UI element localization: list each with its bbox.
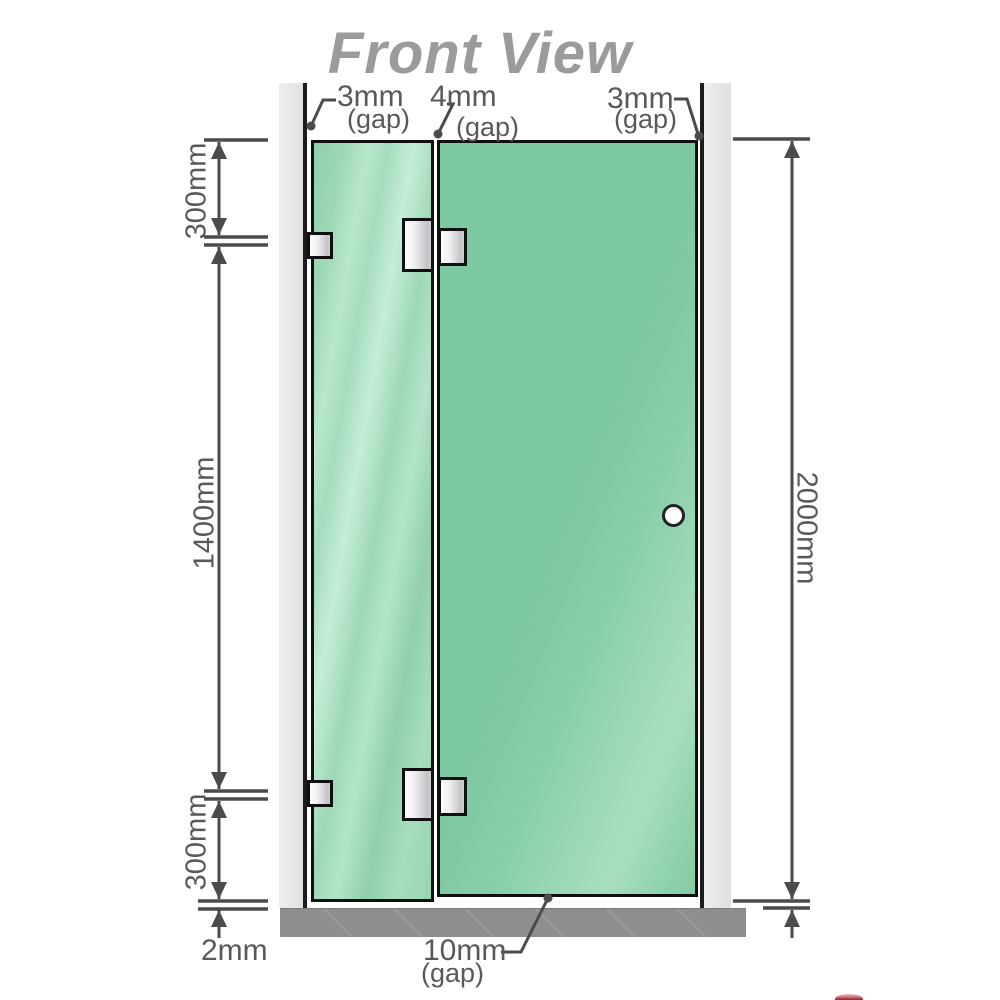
dimension-label-floor-gap: 2mm [201,936,268,966]
dimension-label-left-middle: 1400mm [189,457,222,570]
watermark-logo-fragment [835,994,863,1000]
dimension-label-left-bottom: 300mm [181,794,214,891]
hinge-bottom-panel-side [402,768,434,821]
gap-label-top-left-unit: (gap) [347,106,410,133]
dimension-label-left-top: 300mm [181,143,214,240]
gap-label-top-middle-value: 4mm [430,82,497,112]
dimension-label-right-total: 2000mm [790,472,823,585]
hinge-bottom-door-side [438,777,467,816]
floor-base [280,908,746,937]
gap-label-top-middle-unit: (gap) [456,114,519,141]
shower-screen-front-view-diagram: Front View [0,0,1000,1000]
gap-label-top-right-unit: (gap) [614,106,677,133]
hinge-top-door-side [438,228,467,266]
hinge-top-panel-side [402,218,434,272]
right-wall-inner-edge [700,83,704,908]
wall-bracket-bottom [307,780,333,807]
left-wall-channel [279,83,303,908]
page-title: Front View [240,20,720,87]
right-wall-channel [704,83,731,908]
wall-bracket-top [307,232,333,259]
door-glass-panel [437,140,698,897]
door-knob [662,504,685,527]
gap-label-bottom-unit: (gap) [421,960,484,987]
